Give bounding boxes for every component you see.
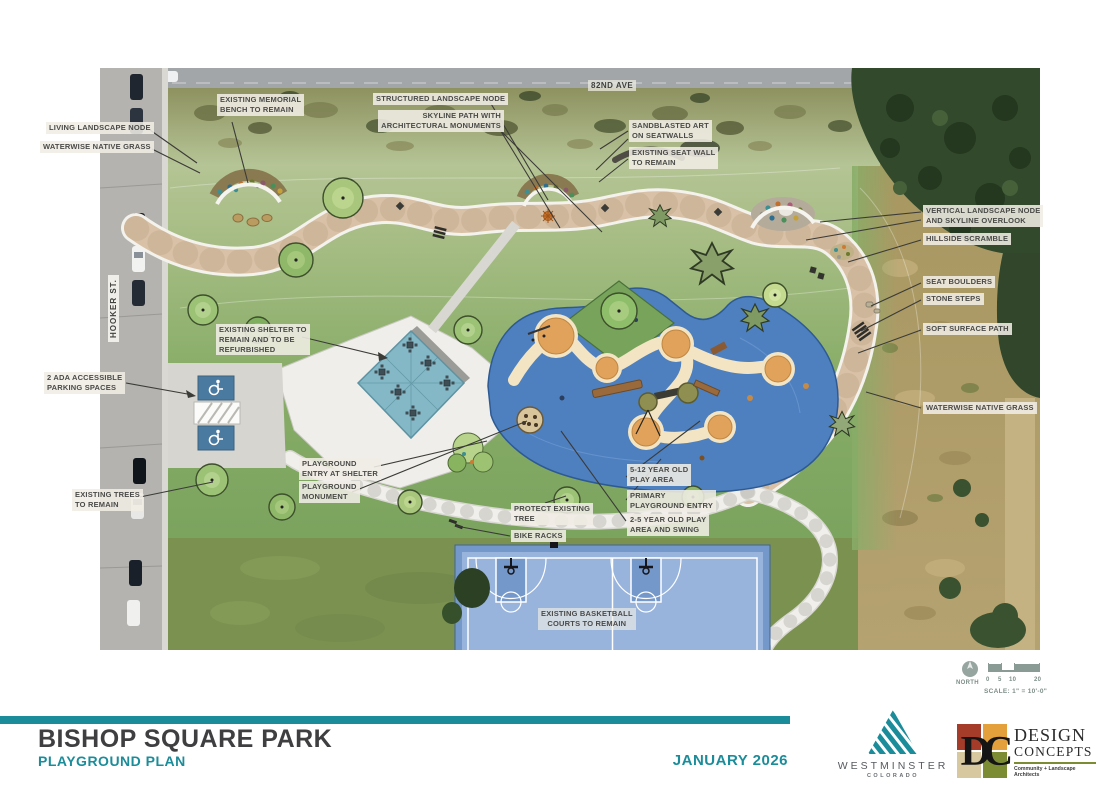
callout-structured-landscape-node: STRUCTURED LANDSCAPE NODE	[373, 93, 508, 105]
callout-sandblasted-art: SANDBLASTED ART ON SEATWALLS	[629, 120, 712, 142]
dark-bush	[454, 568, 490, 608]
callout-existing-trees: EXISTING TREES TO REMAIN	[72, 489, 143, 511]
callout-ada-parking: 2 ADA ACCESSIBLE PARKING SPACES	[44, 372, 125, 394]
westminster-name: WESTMINSTER	[833, 760, 953, 772]
scale-bar	[988, 663, 1040, 672]
dc-line1: DESIGN	[1014, 726, 1086, 744]
callout-waterwise-grass-left: WATERWISE NATIVE GRASS	[40, 141, 154, 153]
north-and-scale: NORTH 0 5 10 20 SCALE: 1" = 10'-0"	[950, 658, 1055, 704]
westminster-mountain-icon	[833, 708, 953, 758]
dc-monogram: DC	[958, 726, 1008, 778]
sculpture	[541, 209, 555, 223]
playground-monument-feature	[517, 407, 543, 433]
callout-stone-steps: STONE STEPS	[923, 293, 984, 305]
site-plan	[100, 68, 1040, 650]
westminster-sub: COLORADO	[833, 773, 953, 779]
callout-waterwise-grass-right: WATERWISE NATIVE GRASS	[923, 402, 1037, 414]
north-label: NORTH	[956, 680, 979, 686]
page-title: BISHOP SQUARE PARK	[38, 727, 332, 752]
dc-tagline: Community + Landscape Architects	[1014, 766, 1097, 778]
scale-text: SCALE: 1" = 10'-0"	[984, 688, 1047, 695]
scale-tick-0: 0	[986, 677, 990, 683]
callout-play-area-5-12: 5-12 YEAR OLD PLAY AREA	[627, 464, 691, 486]
callout-living-landscape-node: LIVING LANDSCAPE NODE	[46, 122, 154, 134]
callout-seat-boulders: SEAT BOULDERS	[923, 276, 995, 288]
plan-sheet: LIVING LANDSCAPE NODE WATERWISE NATIVE G…	[0, 0, 1102, 786]
accent-bar	[0, 716, 790, 724]
scale-tick-5: 5	[998, 677, 1002, 683]
scale-tick-20: 20	[1034, 677, 1041, 683]
callout-hillside-scramble: HILLSIDE SCRAMBLE	[923, 233, 1011, 245]
callout-soft-surface-path: SOFT SURFACE PATH	[923, 323, 1012, 335]
callout-skyline-path: SKYLINE PATH WITH ARCHITECTURAL MONUMENT…	[378, 110, 504, 132]
callout-basketball-courts: EXISTING BASKETBALL COURTS TO REMAIN	[538, 608, 636, 630]
callout-primary-entry: PRIMARY PLAYGROUND ENTRY	[627, 490, 716, 512]
basketball-courts	[455, 542, 770, 650]
ada-stalls	[194, 376, 240, 450]
landscape-node-3	[751, 197, 815, 231]
callout-existing-seat-wall: EXISTING SEAT WALL TO REMAIN	[629, 147, 718, 169]
street-label-82nd-ave: 82ND AVE	[588, 80, 636, 91]
callout-memorial-bench: EXISTING MEMORIAL BENCH TO REMAIN	[217, 94, 304, 116]
callout-bike-racks: BIKE RACKS	[511, 530, 566, 542]
callout-play-area-2-5: 2-5 YEAR OLD PLAY AREA AND SWING	[627, 514, 709, 536]
callout-playground-entry-shelter: PLAYGROUND ENTRY AT SHELTER	[299, 458, 381, 480]
scale-tick-10: 10	[1009, 677, 1016, 683]
site-plan-art	[100, 68, 1040, 650]
callout-playground-monument: PLAYGROUND MONUMENT	[299, 481, 360, 503]
dark-bush	[442, 602, 462, 624]
hillside-scramble-feature	[830, 244, 854, 260]
sidewalk	[162, 68, 168, 650]
callout-protect-tree: PROTECT EXISTING TREE	[511, 503, 593, 525]
design-concepts-logo: DC DESIGN CONCEPTS Community + Landscape…	[957, 724, 1097, 782]
sheet-date: JANUARY 2026	[588, 753, 788, 768]
sheet-subtitle: PLAYGROUND PLAN	[38, 754, 186, 768]
street-label-hooker-st: HOOKER ST.	[108, 275, 119, 342]
callout-vertical-landscape-node: VERTICAL LANDSCAPE NODE AND SKYLINE OVER…	[923, 205, 1043, 227]
westminster-logo: WESTMINSTER COLORADO	[833, 708, 953, 780]
dc-line2: CONCEPTS	[1014, 745, 1093, 759]
callout-existing-shelter: EXISTING SHELTER TO REMAIN AND TO BE REF…	[216, 324, 310, 355]
dc-rule	[1014, 762, 1096, 764]
